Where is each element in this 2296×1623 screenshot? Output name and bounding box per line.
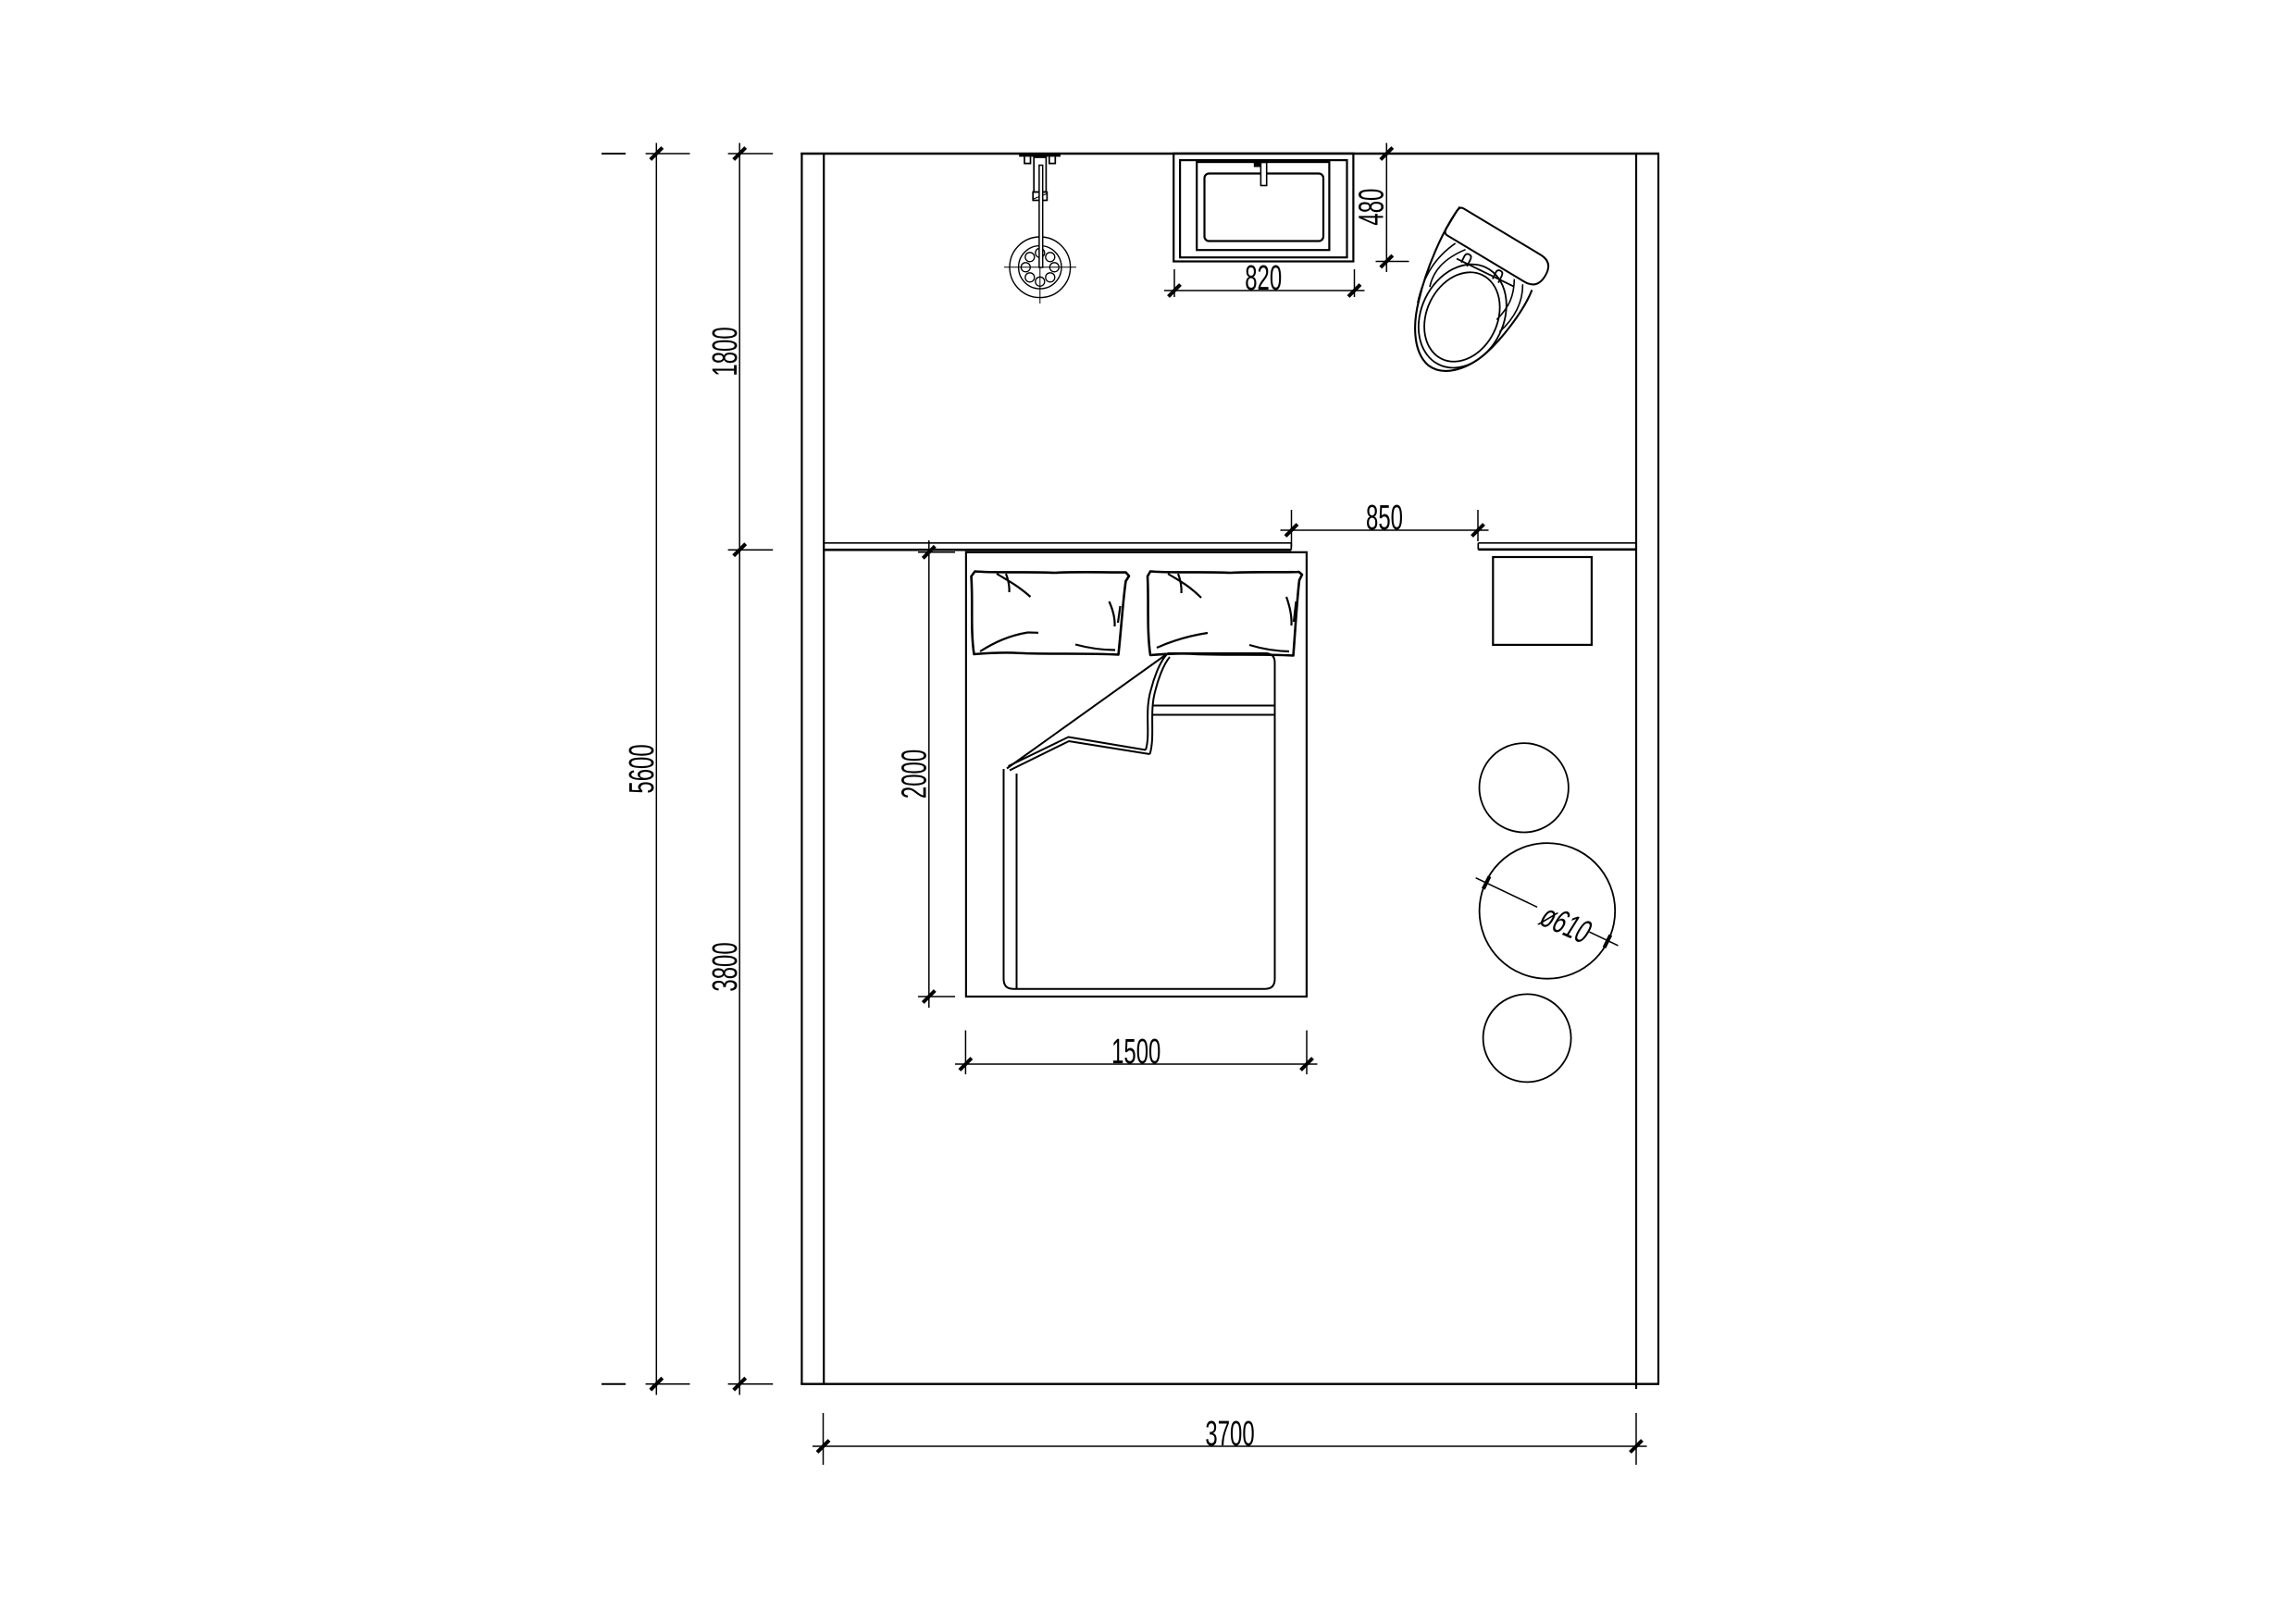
svg-text:3800: 3800 xyxy=(704,942,744,991)
svg-text:1500: 1500 xyxy=(1111,1031,1160,1071)
svg-text:480: 480 xyxy=(1351,189,1391,226)
svg-text:1800: 1800 xyxy=(704,327,744,376)
svg-text:2000: 2000 xyxy=(894,750,934,799)
svg-text:820: 820 xyxy=(1245,257,1282,297)
svg-text:3700: 3700 xyxy=(1205,1413,1254,1453)
svg-text:5600: 5600 xyxy=(621,744,661,793)
svg-text:850: 850 xyxy=(1366,497,1403,537)
